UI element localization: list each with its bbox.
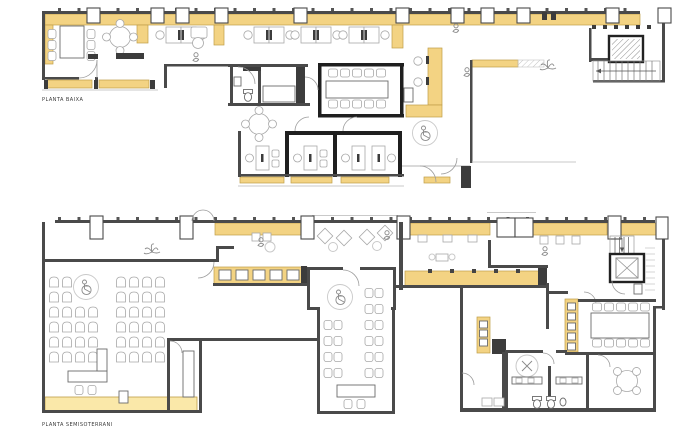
presenter-table (337, 385, 375, 397)
office-desk (372, 146, 396, 170)
fitness-equipment (429, 254, 455, 261)
corridor-tables (219, 270, 299, 280)
stair-core-top-plan (589, 25, 660, 81)
classroom (307, 267, 396, 414)
workstation-cluster (244, 27, 294, 43)
meeting-room-left (48, 20, 144, 79)
workstation-cluster (339, 27, 389, 43)
person-icon (464, 68, 470, 77)
shelving-units (480, 303, 576, 354)
auditorium (45, 244, 234, 412)
plant-icon (144, 244, 160, 254)
floor-plan-sheet: PLANTA BAIXA (0, 0, 700, 435)
person-icon (542, 247, 548, 256)
plan-label-planta-baixa: PLANTA BAIXA (42, 97, 83, 103)
stair-core-bottom-plan (610, 236, 655, 294)
person-icon (193, 53, 199, 62)
wheelchair-icon (328, 285, 353, 310)
office-desk (294, 146, 318, 170)
service-block (228, 64, 310, 106)
meeting-table (60, 26, 84, 58)
plan-planta-baixa: PLANTA BAIXA (42, 8, 671, 188)
presenter-table (68, 371, 107, 382)
urinal (560, 398, 566, 406)
toilet-icon (547, 397, 556, 409)
plan-planta-semisoterrani: PLANTA SEMISOTERRANI (42, 210, 668, 428)
conference-table (326, 81, 388, 98)
conference-room (305, 63, 404, 118)
lounge-chair (359, 229, 375, 245)
lounge-chair (317, 228, 333, 244)
reception-counter (404, 48, 442, 117)
stairs-icon (593, 61, 660, 81)
wheelchair-icon (413, 121, 438, 146)
small-offices (238, 107, 404, 187)
office-desk (342, 146, 366, 170)
round-table (242, 107, 277, 142)
wheelchair-icon (74, 275, 99, 300)
printer (193, 38, 204, 49)
office-desk (246, 146, 270, 170)
counter (263, 86, 295, 102)
tall-cabinet (296, 67, 305, 103)
wc-zone (505, 350, 610, 410)
lectern (119, 391, 128, 403)
lounge-chair (336, 230, 352, 246)
floor-plan-canvas: PLANTA BAIXA (0, 0, 700, 435)
person-icon (258, 238, 264, 247)
classroom-seating (324, 289, 383, 378)
meeting-table (591, 313, 649, 338)
toilet-icon (533, 397, 542, 409)
workstation-cluster (291, 27, 341, 43)
open-office-workstations (156, 27, 389, 61)
sink (234, 77, 241, 86)
meeting-room-right (565, 299, 656, 355)
plan-label-planta-semisoterrani: PLANTA SEMISOTERRANI (42, 422, 113, 428)
toilet-icon (244, 90, 253, 102)
sideboard (116, 53, 144, 59)
